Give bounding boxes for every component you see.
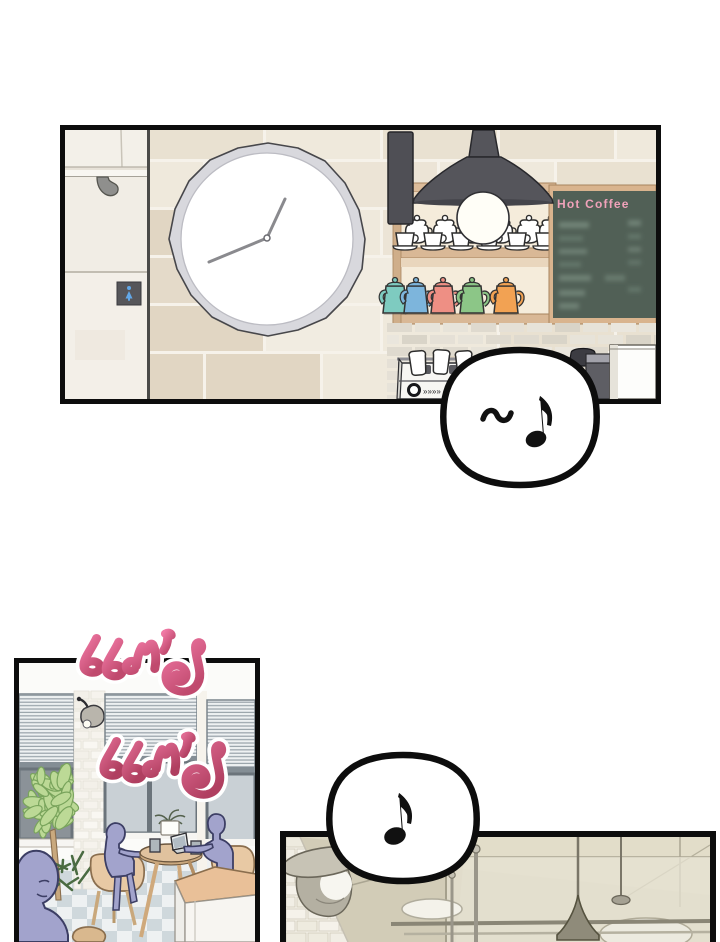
svg-text:Hot Coffee: Hot Coffee [557, 197, 630, 211]
